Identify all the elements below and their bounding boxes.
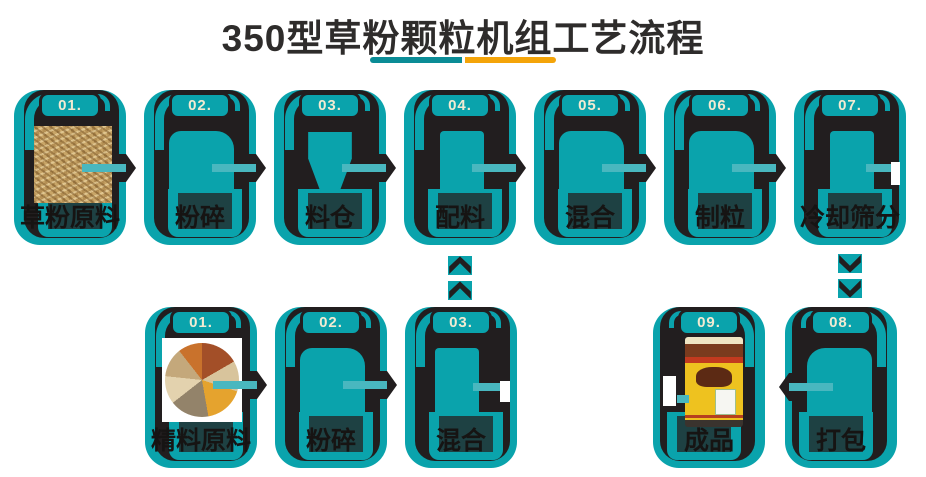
connector-bar <box>866 164 892 172</box>
flow-card-top-06: 06. 制粒 <box>664 90 776 245</box>
step-number-badge: 06. <box>689 92 751 119</box>
step-number-badge: 02. <box>300 309 362 336</box>
arrow-right-icon <box>361 371 397 399</box>
chevron-down-icon <box>838 279 862 298</box>
chevron-up-icon <box>448 281 472 300</box>
title-underline <box>370 57 556 63</box>
flow-card-top-05: 05. 混合 <box>534 90 646 245</box>
step-number-badge: 07. <box>819 92 881 119</box>
arrow-left-icon <box>779 373 815 401</box>
step-label: 粉碎 <box>275 427 387 456</box>
step-label: 成品 <box>653 427 765 456</box>
flow-card-bottom-02: 02. 粉碎 <box>275 307 387 468</box>
down-arrows-connector <box>838 254 862 298</box>
step-number-badge: 01. <box>39 92 101 119</box>
step-label: 粉碎 <box>144 204 256 233</box>
step-label: 打包 <box>785 427 897 456</box>
chevron-down-icon <box>838 254 862 273</box>
arrow-right-icon <box>231 371 267 399</box>
underline-orange-segment <box>465 57 557 63</box>
step-label: 精料原料 <box>145 427 257 456</box>
underline-teal-segment <box>370 57 462 63</box>
step-number-badge: 02. <box>169 92 231 119</box>
arrow-right-icon <box>100 154 136 182</box>
up-arrows-connector <box>448 256 472 300</box>
step-number-badge: 03. <box>299 92 361 119</box>
step-label: 草粉原料 <box>14 204 126 233</box>
flow-card-bottom-09: 09. 成品 <box>653 307 765 468</box>
flow-card-top-07: 07. 冷却筛分 <box>794 90 906 245</box>
arrow-right-icon <box>360 154 396 182</box>
process-flow-diagram: 350型草粉颗粒机组工艺流程 01. 草粉原料 02. 粉碎 03. <box>0 0 926 477</box>
arrow-right-icon <box>750 154 786 182</box>
step-number-badge: 08. <box>810 309 872 336</box>
step-label: 混合 <box>405 427 517 456</box>
flow-card-bottom-03: 03. 混合 <box>405 307 517 468</box>
step-number-badge: 05. <box>559 92 621 119</box>
step-label: 料仓 <box>274 204 386 233</box>
feed-bag-photo <box>685 337 743 427</box>
page-title: 350型草粉颗粒机组工艺流程 <box>0 8 926 62</box>
step-label: 冷却筛分 <box>794 204 906 233</box>
connector-bar <box>677 395 689 403</box>
step-number-badge: 01. <box>170 309 232 336</box>
step-number-badge: 09. <box>678 309 740 336</box>
connector-bar <box>473 383 501 391</box>
flow-card-bottom-01: 01. 精料原料 <box>145 307 257 468</box>
step-label: 配料 <box>404 204 516 233</box>
arrow-right-icon <box>230 154 266 182</box>
chevron-up-icon <box>448 256 472 275</box>
flow-card-top-03: 03. 料仓 <box>274 90 386 245</box>
flow-card-bottom-08: 08. 打包 <box>785 307 897 468</box>
step-label: 混合 <box>534 204 646 233</box>
step-label: 制粒 <box>664 204 776 233</box>
arrow-right-icon <box>490 154 526 182</box>
white-notch <box>891 162 900 185</box>
white-notch <box>663 376 676 406</box>
flow-card-top-04: 04. 配料 <box>404 90 516 245</box>
flow-card-top-01: 01. 草粉原料 <box>14 90 126 245</box>
step-number-badge: 04. <box>429 92 491 119</box>
arrow-right-icon <box>620 154 656 182</box>
step-number-badge: 03. <box>430 309 492 336</box>
flow-card-top-02: 02. 粉碎 <box>144 90 256 245</box>
grain-mix-photo <box>162 338 242 422</box>
white-notch <box>500 381 510 402</box>
